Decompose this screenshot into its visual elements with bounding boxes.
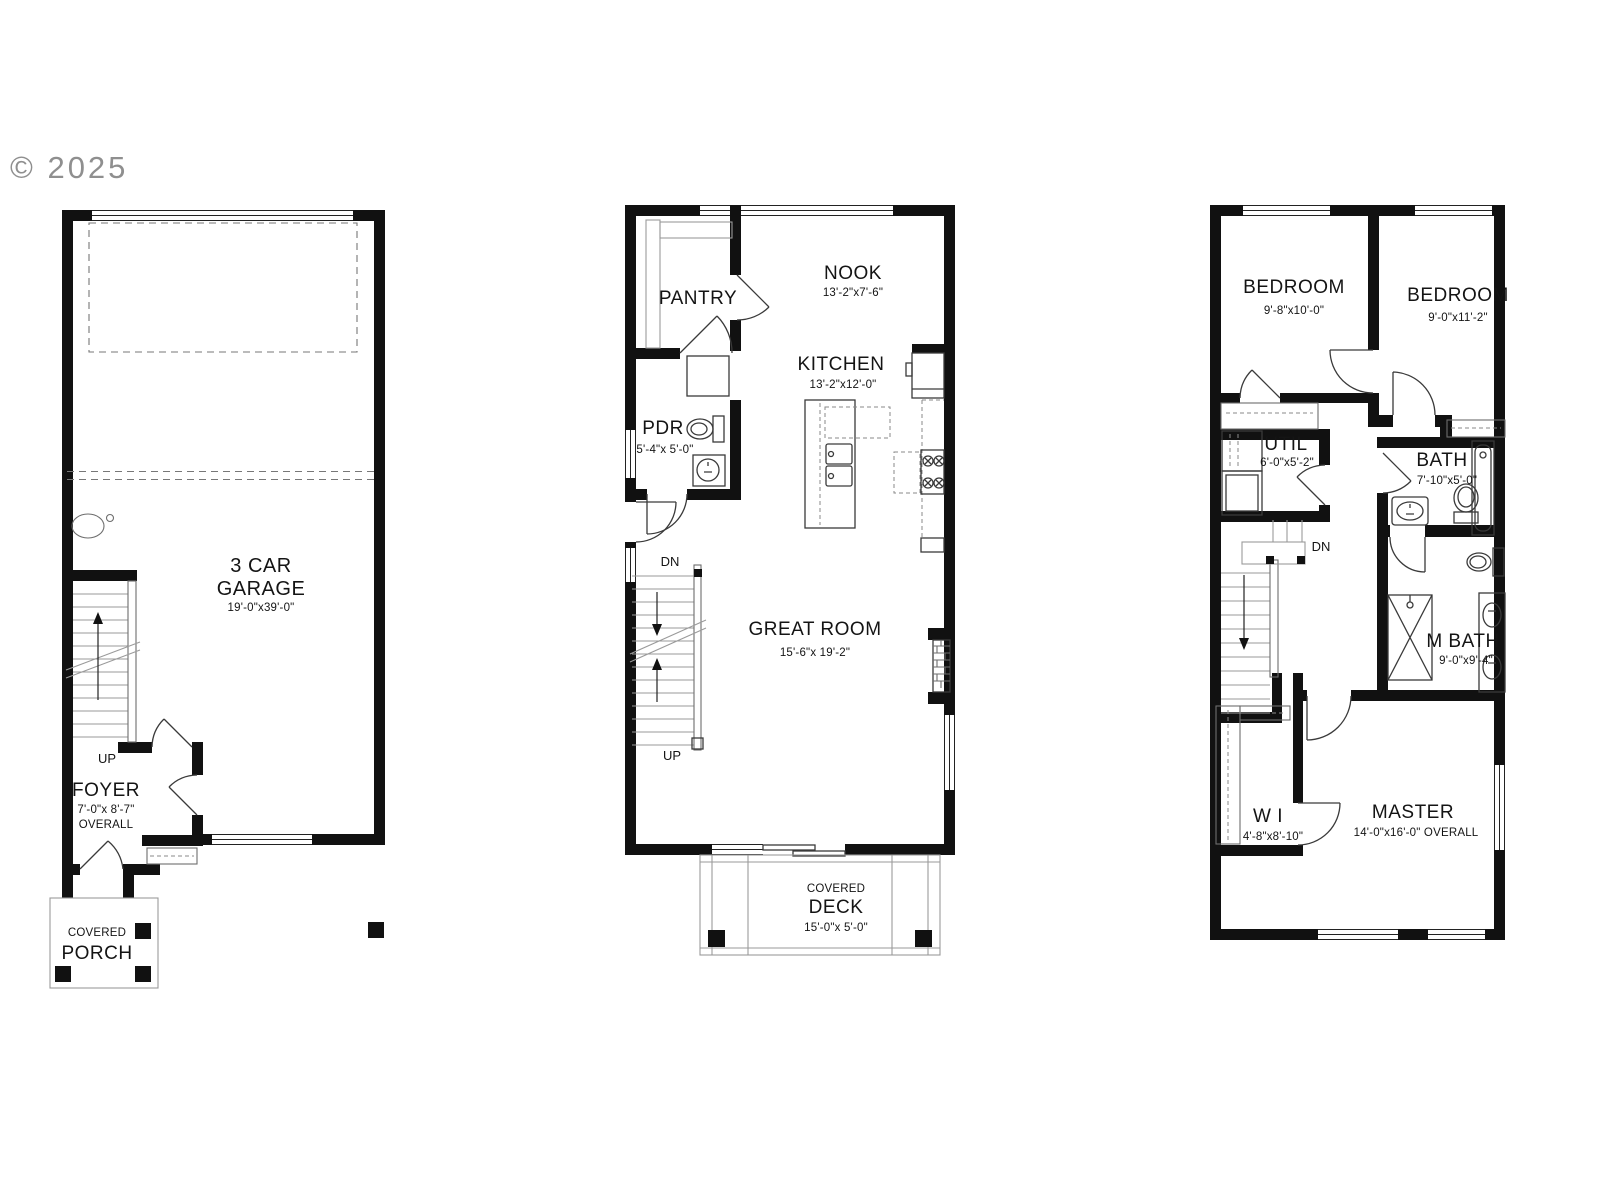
main-stairs-up-label: UP xyxy=(663,748,681,763)
util-room-dims: 6'-0"x5'-2" xyxy=(1260,457,1314,469)
upper-stairs-dn-label: DN xyxy=(1312,539,1331,554)
washer-dryer-fixture xyxy=(1222,431,1262,515)
mbath-room-dims: 9'-0"x9'-4" xyxy=(1439,655,1493,667)
kitchen-sink-fixture xyxy=(826,444,852,486)
great-room-label: GREAT ROOM xyxy=(748,619,881,640)
floor-drain-fixture xyxy=(72,514,114,538)
garage-mid-dashed-line xyxy=(67,472,378,480)
kitchen-counter xyxy=(921,400,944,552)
pantry-shelves xyxy=(646,220,732,348)
deck-label-line1: COVERED xyxy=(807,883,865,895)
kitchen-island xyxy=(805,400,890,528)
copyright-watermark: © 2025 xyxy=(10,150,128,185)
main-stairs xyxy=(630,565,706,750)
nook-room-label: NOOK xyxy=(824,263,882,284)
bedroom1-room-dims: 9'-8"x10'-0" xyxy=(1264,305,1324,317)
kitchen-room-dims: 13'-2"x12'-0" xyxy=(810,379,877,391)
pantry-room-label: PANTRY xyxy=(659,288,737,309)
foyer-room-label: FOYER xyxy=(72,780,140,801)
floor-plan-drawing: © 2025 xyxy=(0,0,1600,1200)
bedroom2-room-dims: 9'-0"x11'-2" xyxy=(1428,312,1488,324)
great-room-dims: 15'-6"x 19'-2" xyxy=(780,647,850,659)
foyer-overall-label: OVERALL xyxy=(79,819,134,831)
bath-room-label: BATH xyxy=(1416,450,1467,471)
foyer-closet xyxy=(147,848,197,864)
range-fixture xyxy=(894,450,944,494)
master-room-dims: 14'-0"x16'-0" OVERALL xyxy=(1354,827,1479,839)
powder-room-label: PDR xyxy=(642,418,684,439)
garage-stairs-up-label: UP xyxy=(98,751,116,766)
porch-post-footing xyxy=(368,922,384,938)
garage-room-label-line1: 3 CAR xyxy=(230,555,291,577)
powder-toilet-fixture xyxy=(687,416,724,442)
foyer-room-dims: 7'-0"x 8'-7" xyxy=(77,804,134,816)
master-room-label: MASTER xyxy=(1372,802,1454,823)
bedroom1-closet xyxy=(1221,403,1318,429)
mbath-room-label: M BATH xyxy=(1426,631,1499,652)
plan-main-level: PANTRY NOOK 13'-2"x7'-6" KITCHEN 13'-2"x… xyxy=(625,205,955,955)
main-stairs-dn-label: DN xyxy=(661,554,680,569)
bedroom2-room-label: BEDROOM xyxy=(1407,285,1509,306)
plan-garage-level: 3 CAR GARAGE 19'-0"x39'-0" UP FOYER 7'-0… xyxy=(50,210,385,988)
porch-label-line2: PORCH xyxy=(61,943,132,964)
garage-room-dims: 19'-0"x39'-0" xyxy=(228,602,295,614)
upper-stairs xyxy=(1221,520,1305,713)
bath-sink-fixture xyxy=(1392,497,1428,525)
floor-plan-sheet: © 2025 xyxy=(0,0,1600,1200)
util-room-label: UTIL xyxy=(1264,434,1307,455)
upper-doors xyxy=(1240,350,1435,845)
walkin-closet-label: W I xyxy=(1253,806,1283,827)
main-doors xyxy=(636,275,769,542)
deck-dims: 15'-0"x 5'-0" xyxy=(804,922,868,934)
walkin-closet-dims: 4'-8"x8'-10" xyxy=(1243,831,1303,843)
deck-label-line2: DECK xyxy=(809,897,864,918)
nook-room-dims: 13'-2"x7'-6" xyxy=(823,287,883,299)
bedroom1-room-label: BEDROOM xyxy=(1243,277,1345,298)
porch-label-line1: COVERED xyxy=(68,927,126,939)
powder-sink-fixture xyxy=(693,455,725,486)
garage-room-label-line2: GARAGE xyxy=(217,578,306,600)
bathtub-fixture xyxy=(1472,441,1494,535)
powder-room-dims: 5'-4"x 5'-0" xyxy=(636,444,693,456)
plan-upper-level: BEDROOM 9'-8"x10'-0" BEDROOM 9'-0"x11'-2… xyxy=(1210,205,1509,940)
garage-stairs xyxy=(66,581,140,742)
refrigerator-fixture xyxy=(906,353,944,398)
hall-cabinet xyxy=(687,356,729,396)
kitchen-room-label: KITCHEN xyxy=(798,354,885,375)
garage-door-overhead-dashed xyxy=(89,223,357,352)
bath-room-dims: 7'-10"x5'-0" xyxy=(1417,475,1477,487)
